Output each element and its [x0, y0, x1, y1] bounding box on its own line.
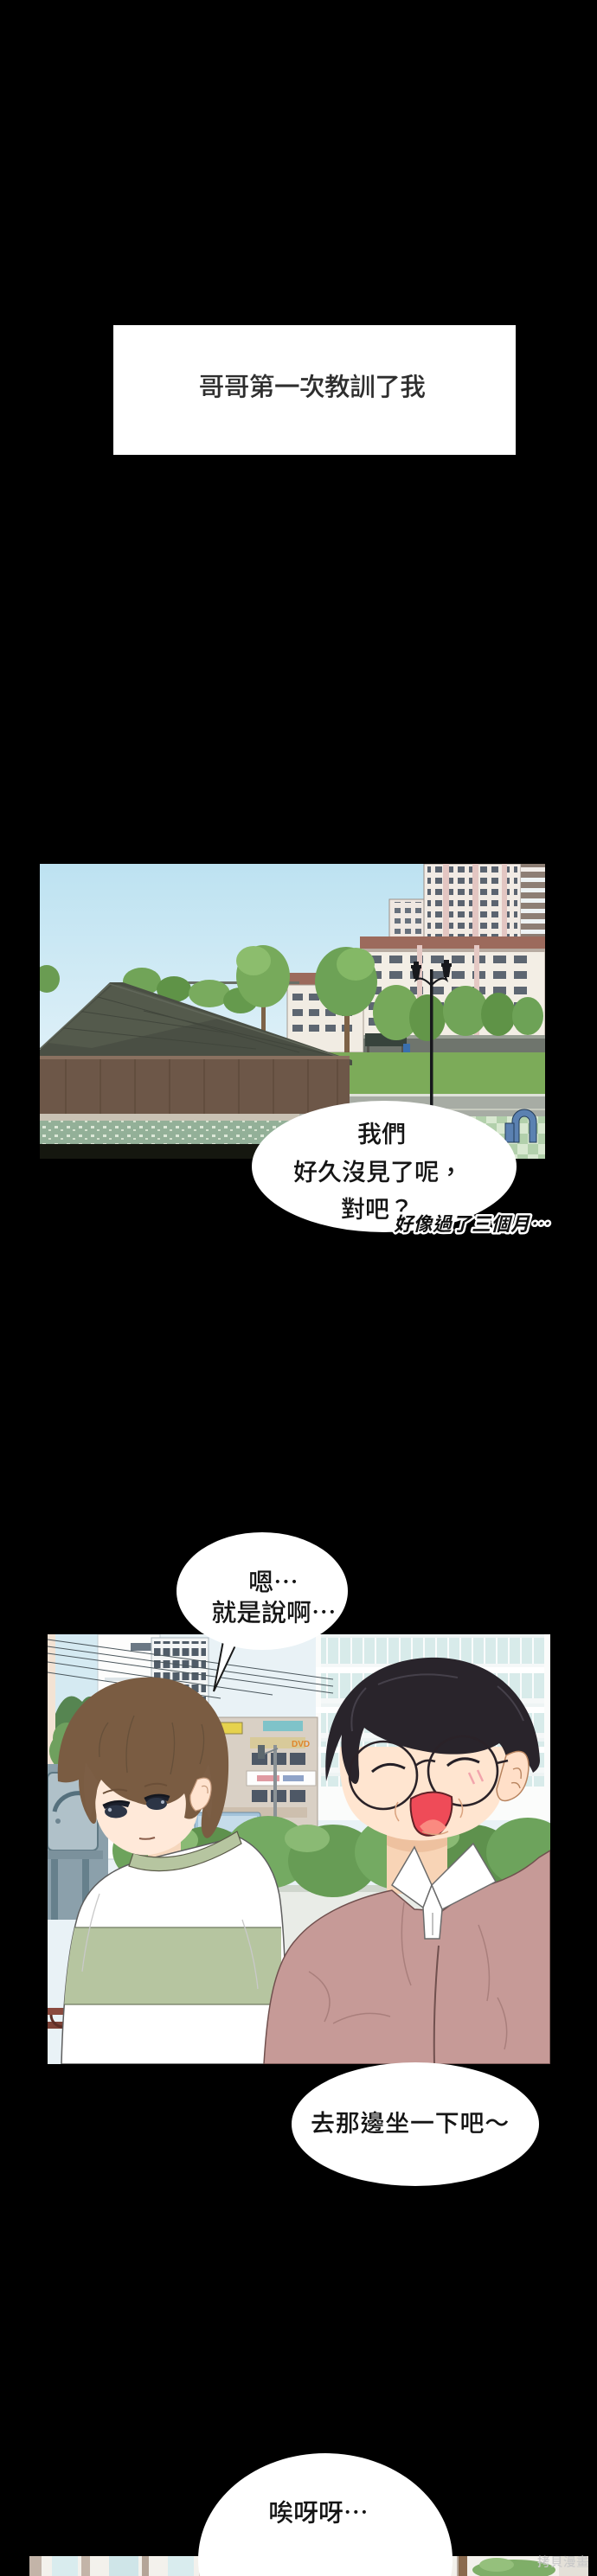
svg-text:DVD: DVD [292, 1740, 310, 1749]
